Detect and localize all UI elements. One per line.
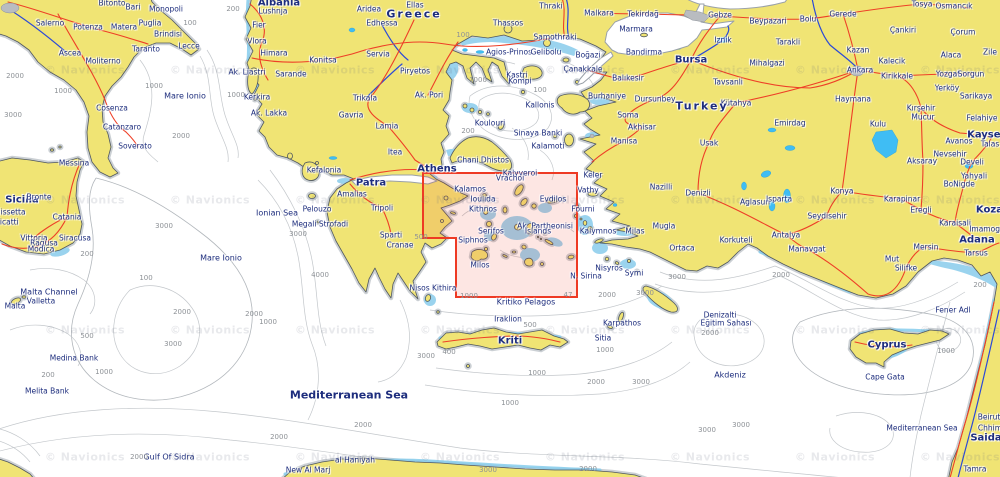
chart-canvas[interactable]: [0, 0, 1000, 477]
nautical-chart-map[interactable]: BitontoBariMonopoliPugliaMateraBrindisiL…: [0, 0, 1000, 477]
selected-region-highlight[interactable]: [423, 173, 577, 297]
